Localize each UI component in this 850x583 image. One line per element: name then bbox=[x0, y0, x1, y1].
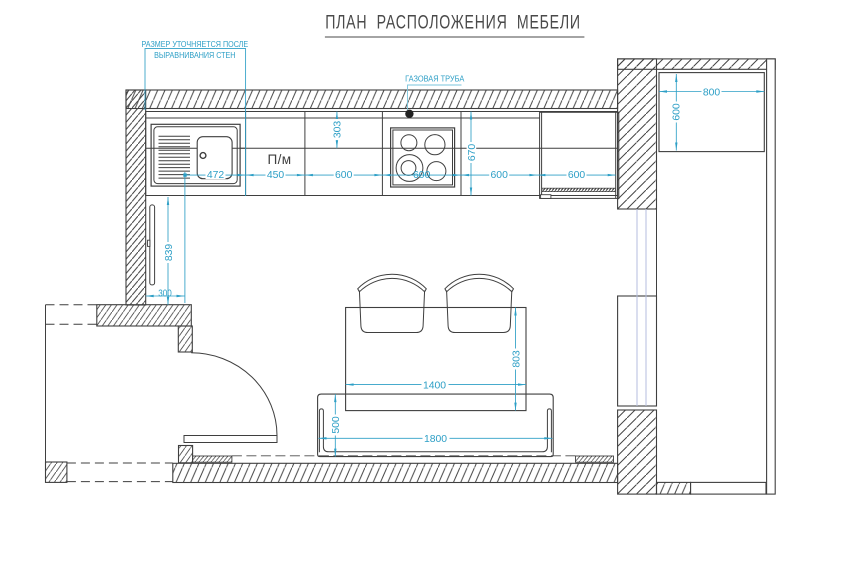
svg-text:ВЫРАВНИВАНИЯ СТЕН: ВЫРАВНИВАНИЯ СТЕН bbox=[154, 51, 235, 60]
svg-text:П/м: П/м bbox=[267, 152, 291, 167]
svg-text:ГАЗОВАЯ ТРУБА: ГАЗОВАЯ ТРУБА bbox=[405, 74, 465, 83]
svg-text:600: 600 bbox=[672, 103, 683, 121]
svg-text:670: 670 bbox=[467, 144, 478, 162]
svg-text:500: 500 bbox=[331, 416, 342, 434]
svg-text:600: 600 bbox=[413, 170, 431, 181]
svg-text:ПЛАН РАСПОЛОЖЕНИЯ МЕБЕЛИ: ПЛАН РАСПОЛОЖЕНИЯ МЕБЕЛИ bbox=[325, 11, 581, 33]
svg-text:600: 600 bbox=[568, 170, 586, 181]
svg-text:1800: 1800 bbox=[424, 434, 447, 445]
svg-text:600: 600 bbox=[335, 170, 353, 181]
svg-text:472: 472 bbox=[207, 170, 225, 181]
svg-text:839: 839 bbox=[164, 244, 175, 262]
svg-text:800: 800 bbox=[703, 87, 721, 98]
svg-text:303: 303 bbox=[332, 121, 343, 139]
svg-text:803: 803 bbox=[511, 350, 522, 368]
svg-text:600: 600 bbox=[491, 170, 509, 181]
svg-text:300: 300 bbox=[158, 287, 172, 298]
svg-text:1400: 1400 bbox=[423, 380, 446, 391]
svg-text:РАЗМЕР УТОЧНЯЕТСЯ ПОСЛЕ: РАЗМЕР УТОЧНЯЕТСЯ ПОСЛЕ bbox=[141, 40, 248, 49]
svg-text:450: 450 bbox=[267, 170, 285, 181]
